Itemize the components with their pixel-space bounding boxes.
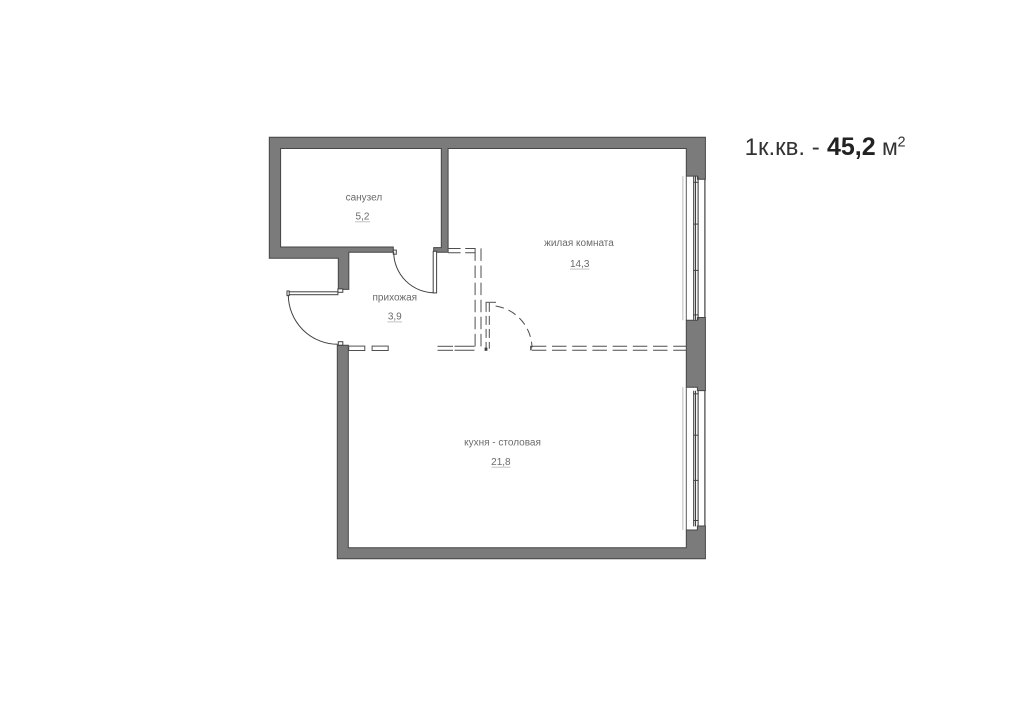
svg-text:3,9: 3,9	[388, 312, 402, 323]
svg-text:санузел: санузел	[346, 192, 383, 203]
svg-text:2: 2	[898, 134, 906, 150]
svg-text:5,2: 5,2	[356, 212, 370, 223]
svg-text:жилая комната: жилая комната	[544, 238, 614, 249]
svg-text:14,3: 14,3	[570, 259, 590, 270]
svg-text:м: м	[882, 134, 898, 160]
svg-text:21,8: 21,8	[491, 457, 511, 468]
svg-text:1к.кв. -: 1к.кв. -	[745, 134, 827, 161]
svg-text:прихожая: прихожая	[373, 292, 418, 303]
svg-text:45,2: 45,2	[827, 133, 876, 161]
svg-text:кухня - столовая: кухня - столовая	[464, 438, 541, 449]
